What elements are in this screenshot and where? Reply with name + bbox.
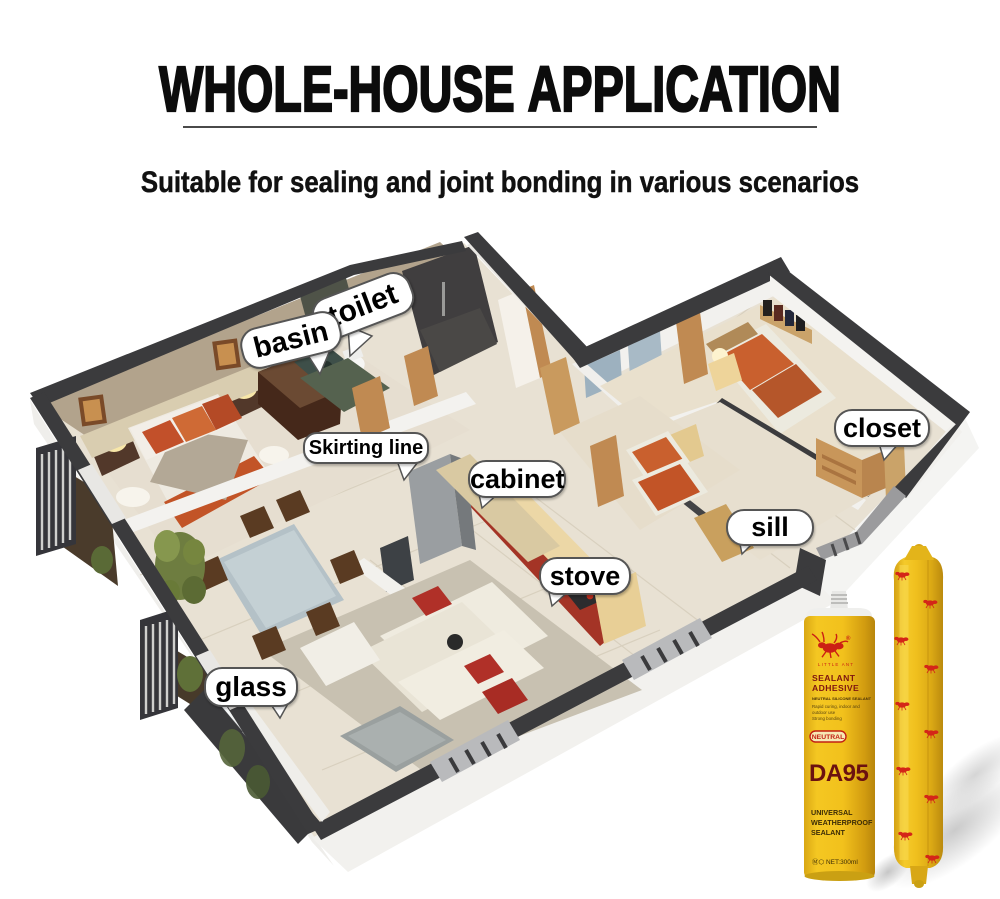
svg-text:SEALANT: SEALANT <box>811 828 846 837</box>
svg-text:LITTLE ANT: LITTLE ANT <box>818 662 854 667</box>
svg-text:outdoor use: outdoor use <box>812 710 836 715</box>
svg-text:WEATHERPROOF: WEATHERPROOF <box>811 818 873 827</box>
svg-text:ADHESIVE: ADHESIVE <box>812 683 859 693</box>
svg-text:SEALANT: SEALANT <box>812 673 856 683</box>
svg-text:®: ® <box>846 635 851 642</box>
svg-text:NEUTRAL: NEUTRAL <box>812 734 844 741</box>
svg-text:UNIVERSAL: UNIVERSAL <box>811 808 853 817</box>
svg-text:DA95: DA95 <box>809 760 869 787</box>
svg-text:Strong bonding: Strong bonding <box>812 716 842 721</box>
svg-text:NEUTRAL SILICONE SEALANT: NEUTRAL SILICONE SEALANT <box>812 696 872 701</box>
svg-text:Ⓜ⬡ NET:300ml: Ⓜ⬡ NET:300ml <box>812 858 858 866</box>
svg-text:Rapid curing, indoor and: Rapid curing, indoor and <box>812 704 860 709</box>
